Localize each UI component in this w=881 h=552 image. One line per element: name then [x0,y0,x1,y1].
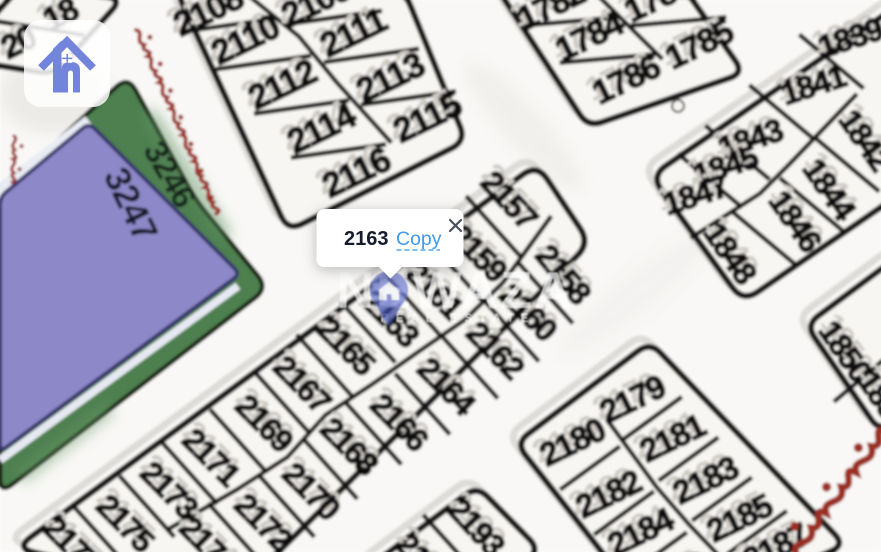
svg-text:Copy: Copy [396,228,442,250]
svg-text:REAL ESTATE: REAL ESTATE [381,313,536,325]
svg-text:2163: 2163 [344,228,389,250]
